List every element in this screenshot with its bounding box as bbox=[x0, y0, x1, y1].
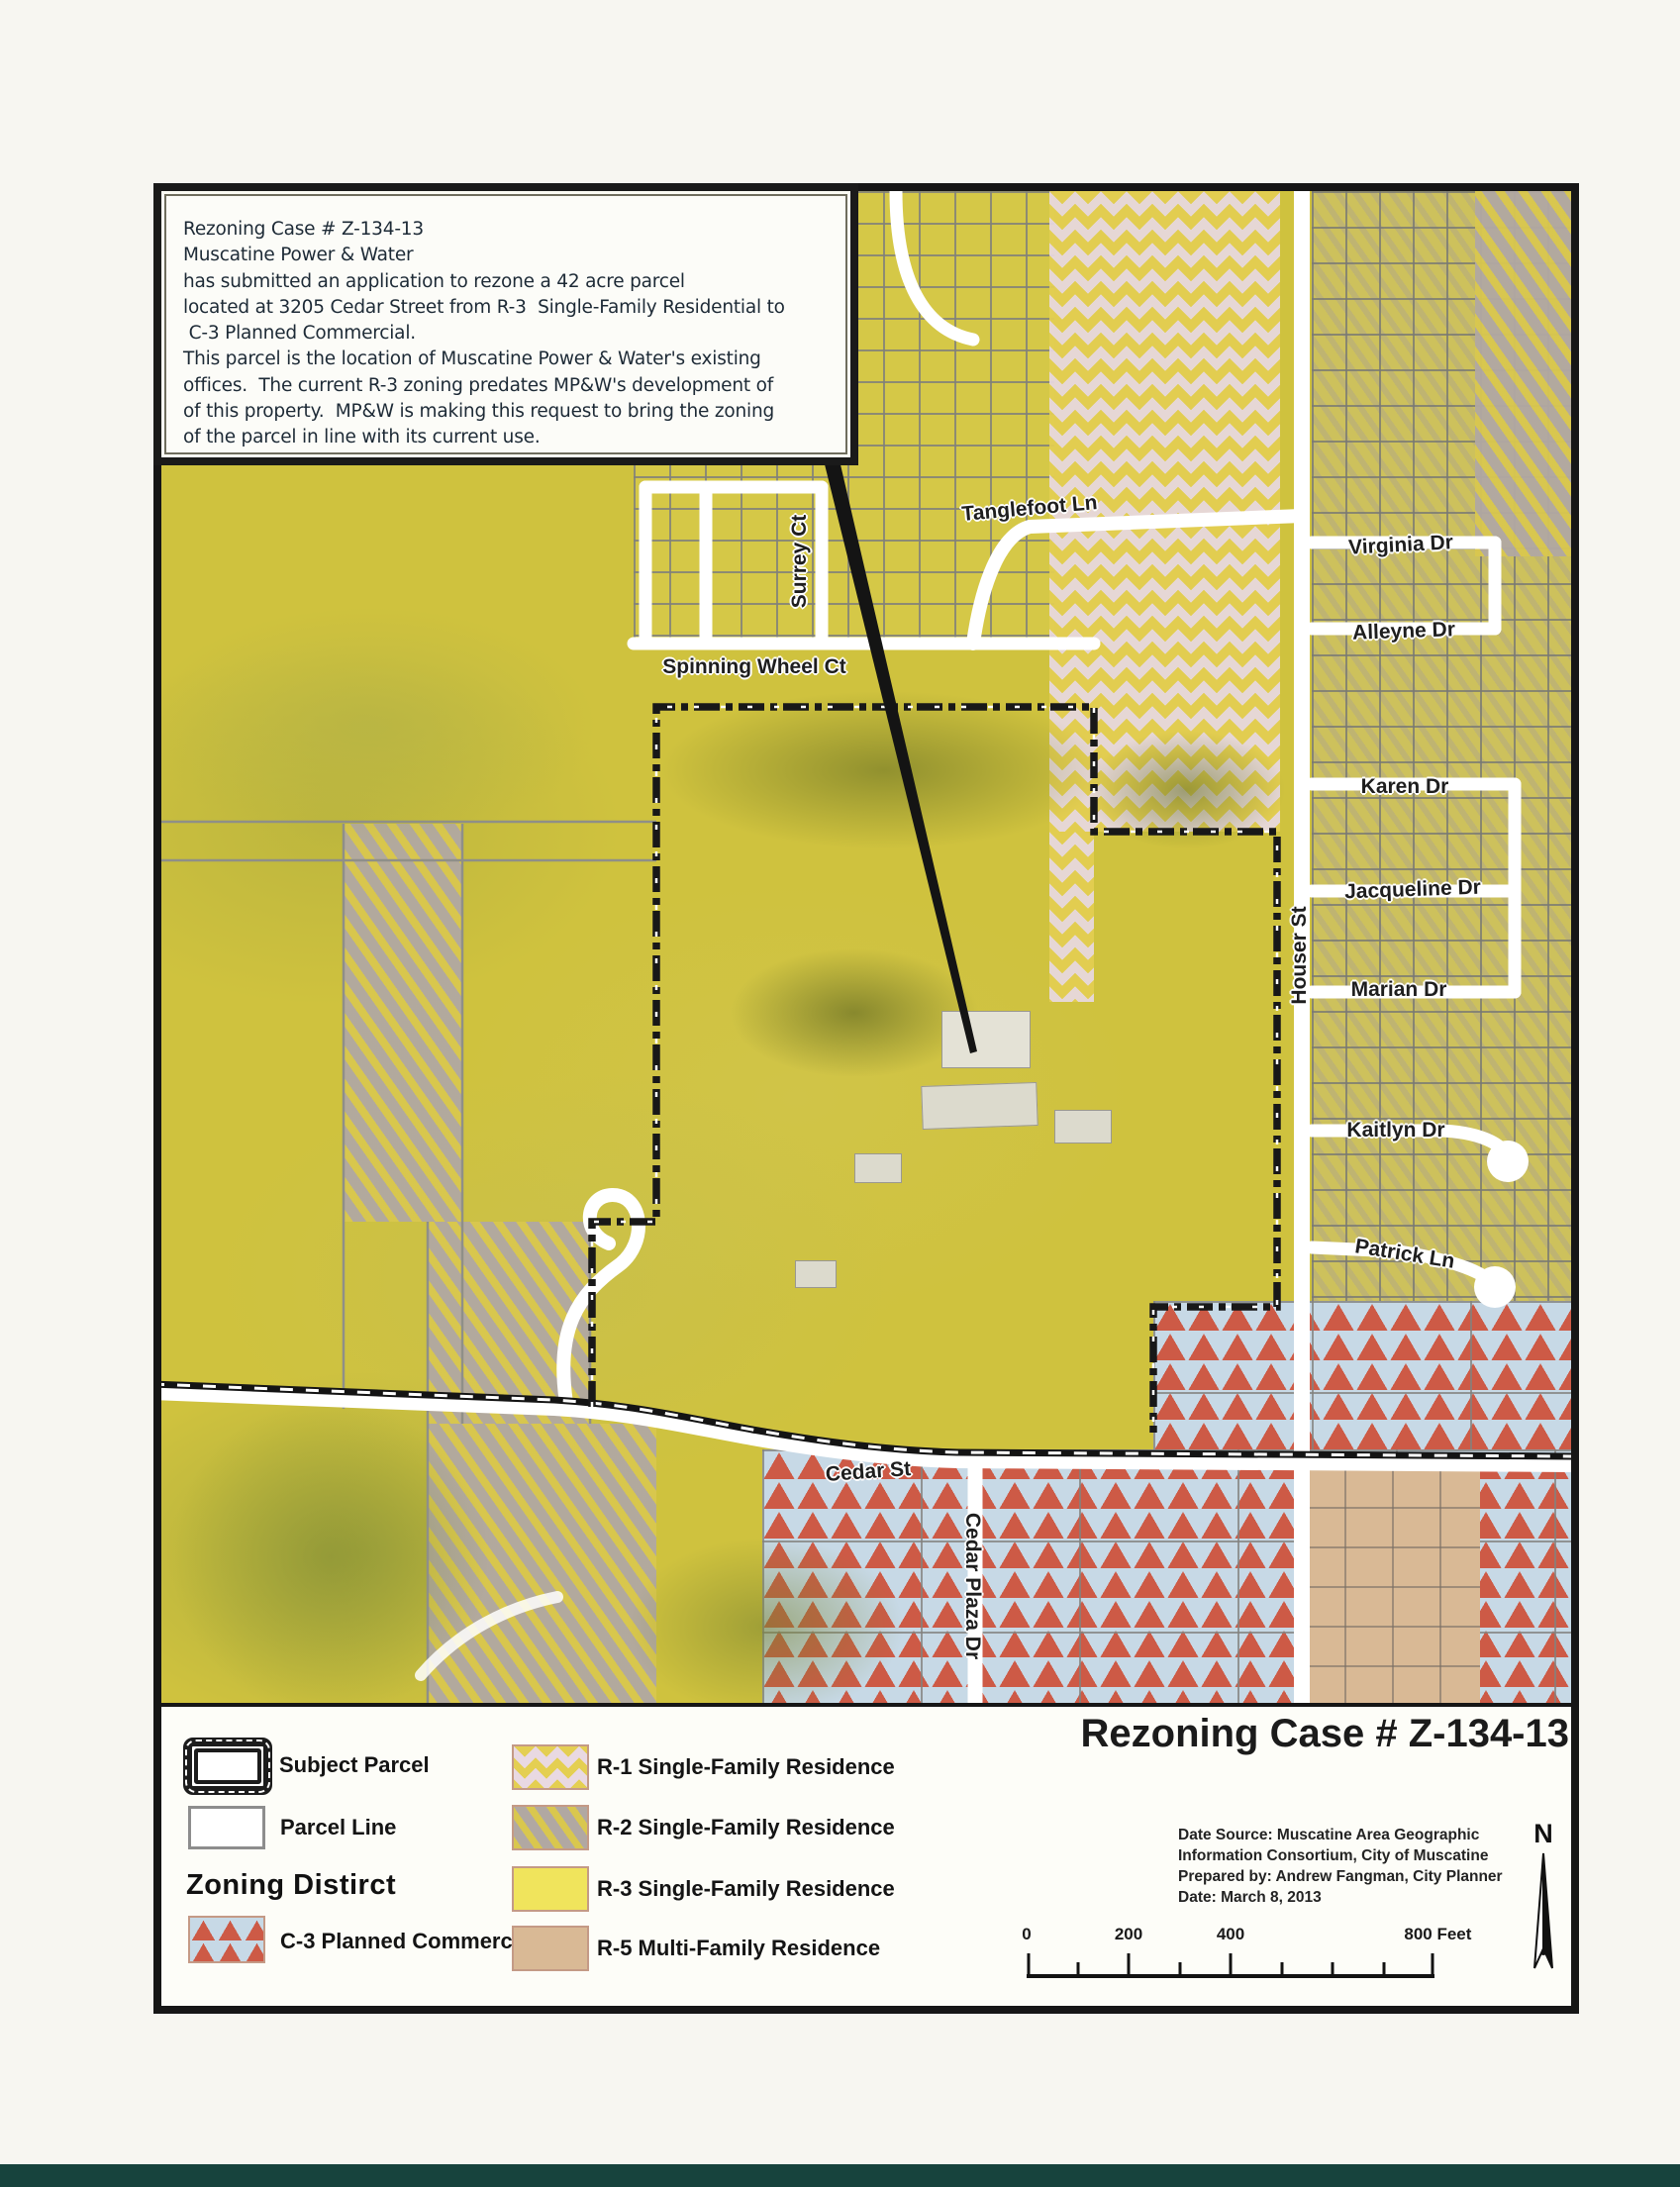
credit-line: Date Source: Muscatine Area Geographic bbox=[1178, 1825, 1503, 1845]
map-title: Rezoning Case # Z-134-13 bbox=[1027, 1712, 1569, 1756]
cul-de-sac bbox=[1487, 1141, 1529, 1182]
scale-tick bbox=[1128, 1953, 1131, 1974]
r1-swatch bbox=[512, 1744, 589, 1790]
scanned-zoning-map-page: { "info_box": { "lines": [ "Rezoning Cas… bbox=[0, 0, 1680, 2187]
info-line: of this property. MP&W is making this re… bbox=[183, 399, 850, 425]
street-label-cedar-plaza: Cedar Plaza Dr bbox=[960, 1513, 984, 1659]
r5-swatch bbox=[512, 1926, 589, 1971]
info-line: of the parcel in line with its current u… bbox=[183, 425, 850, 450]
scale-tick bbox=[1280, 1962, 1283, 1974]
info-line: located at 3205 Cedar Street from R-3 Si… bbox=[183, 295, 850, 321]
credit-line: Information Consortium, City of Muscatin… bbox=[1178, 1845, 1503, 1866]
legend-label-r2: R-2 Single-Family Residence bbox=[597, 1815, 895, 1840]
info-line: offices. The current R-3 zoning predates… bbox=[183, 373, 850, 399]
scale-bar: 0 200 400 800 Feet bbox=[1027, 1925, 1434, 1980]
street-label-marian: Marian Dr bbox=[1351, 978, 1447, 1002]
street-label-houser: Houser St bbox=[1288, 906, 1312, 1004]
street-label-spinning-wheel: Spinning Wheel Ct bbox=[662, 655, 845, 679]
north-arrow-icon bbox=[1522, 1849, 1565, 1978]
subject-parcel-boundary bbox=[592, 707, 1277, 1433]
cul-de-sac bbox=[1474, 1266, 1516, 1308]
parcel-line-swatch bbox=[188, 1806, 265, 1849]
legend-label-c3: C-3 Planned Commercial bbox=[280, 1929, 537, 1954]
north-arrow: N bbox=[1522, 1819, 1565, 1983]
legend-label-subject-parcel: Subject Parcel bbox=[279, 1752, 430, 1778]
info-callout-box: Rezoning Case # Z-134-13 Muscatine Power… bbox=[153, 183, 858, 465]
info-line: Rezoning Case # Z-134-13 bbox=[183, 217, 850, 243]
legend-area: Subject Parcel Parcel Line Zoning Distir… bbox=[161, 1707, 1571, 2006]
street-label-alleyne: Alleyne Dr bbox=[1352, 618, 1456, 646]
parcel-line bbox=[161, 822, 656, 1703]
street-label-jacqueline: Jacqueline Dr bbox=[1344, 876, 1481, 905]
scale-label-400: 400 bbox=[1217, 1925, 1244, 1944]
street-label-kaitlyn: Kaitlyn Dr bbox=[1346, 1119, 1444, 1143]
credits-block: Date Source: Muscatine Area Geographic I… bbox=[1178, 1825, 1503, 1908]
scale-label-0: 0 bbox=[1022, 1925, 1031, 1944]
r3-swatch bbox=[512, 1866, 589, 1912]
credit-line: Date: March 8, 2013 bbox=[1178, 1887, 1503, 1908]
legend-label-parcel-line: Parcel Line bbox=[280, 1815, 396, 1840]
scale-tick bbox=[1432, 1953, 1434, 1974]
north-label: N bbox=[1522, 1819, 1565, 1849]
r2-swatch bbox=[512, 1805, 589, 1850]
street-label-karen: Karen Dr bbox=[1361, 775, 1449, 799]
c3-swatch bbox=[188, 1916, 265, 1963]
info-line: C-3 Planned Commercial. bbox=[183, 321, 850, 347]
scan-edge-strip bbox=[0, 2164, 1680, 2187]
scale-label-800: 800 Feet bbox=[1404, 1925, 1471, 1944]
scale-baseline bbox=[1027, 1974, 1434, 1978]
cedar-boundary-line bbox=[161, 1384, 1571, 1456]
subject-parcel-swatch-inner bbox=[194, 1748, 261, 1784]
scale-tick bbox=[1027, 1953, 1030, 1974]
zoning-district-heading: Zoning Distirct bbox=[186, 1869, 396, 1902]
callout-leader-line bbox=[824, 460, 977, 1053]
scale-tick bbox=[1332, 1962, 1334, 1974]
info-line: Muscatine Power & Water bbox=[183, 243, 850, 268]
credit-line: Prepared by: Andrew Fangman, City Planne… bbox=[1178, 1866, 1503, 1887]
legend-label-r5: R-5 Multi-Family Residence bbox=[597, 1936, 880, 1961]
info-line: has submitted an application to rezone a… bbox=[183, 269, 850, 295]
subject-parcel-swatch bbox=[183, 1738, 272, 1795]
legend-label-r3: R-3 Single-Family Residence bbox=[597, 1876, 895, 1902]
scale-tick bbox=[1178, 1962, 1181, 1974]
scale-label-200: 200 bbox=[1115, 1925, 1142, 1944]
scale-tick bbox=[1382, 1962, 1385, 1974]
legend-label-r1: R-1 Single-Family Residence bbox=[597, 1754, 895, 1780]
scale-tick bbox=[1230, 1953, 1233, 1974]
info-line: This parcel is the location of Muscatine… bbox=[183, 347, 850, 372]
street-label-surrey: Surrey Ct bbox=[788, 515, 812, 609]
scale-tick bbox=[1076, 1962, 1079, 1974]
